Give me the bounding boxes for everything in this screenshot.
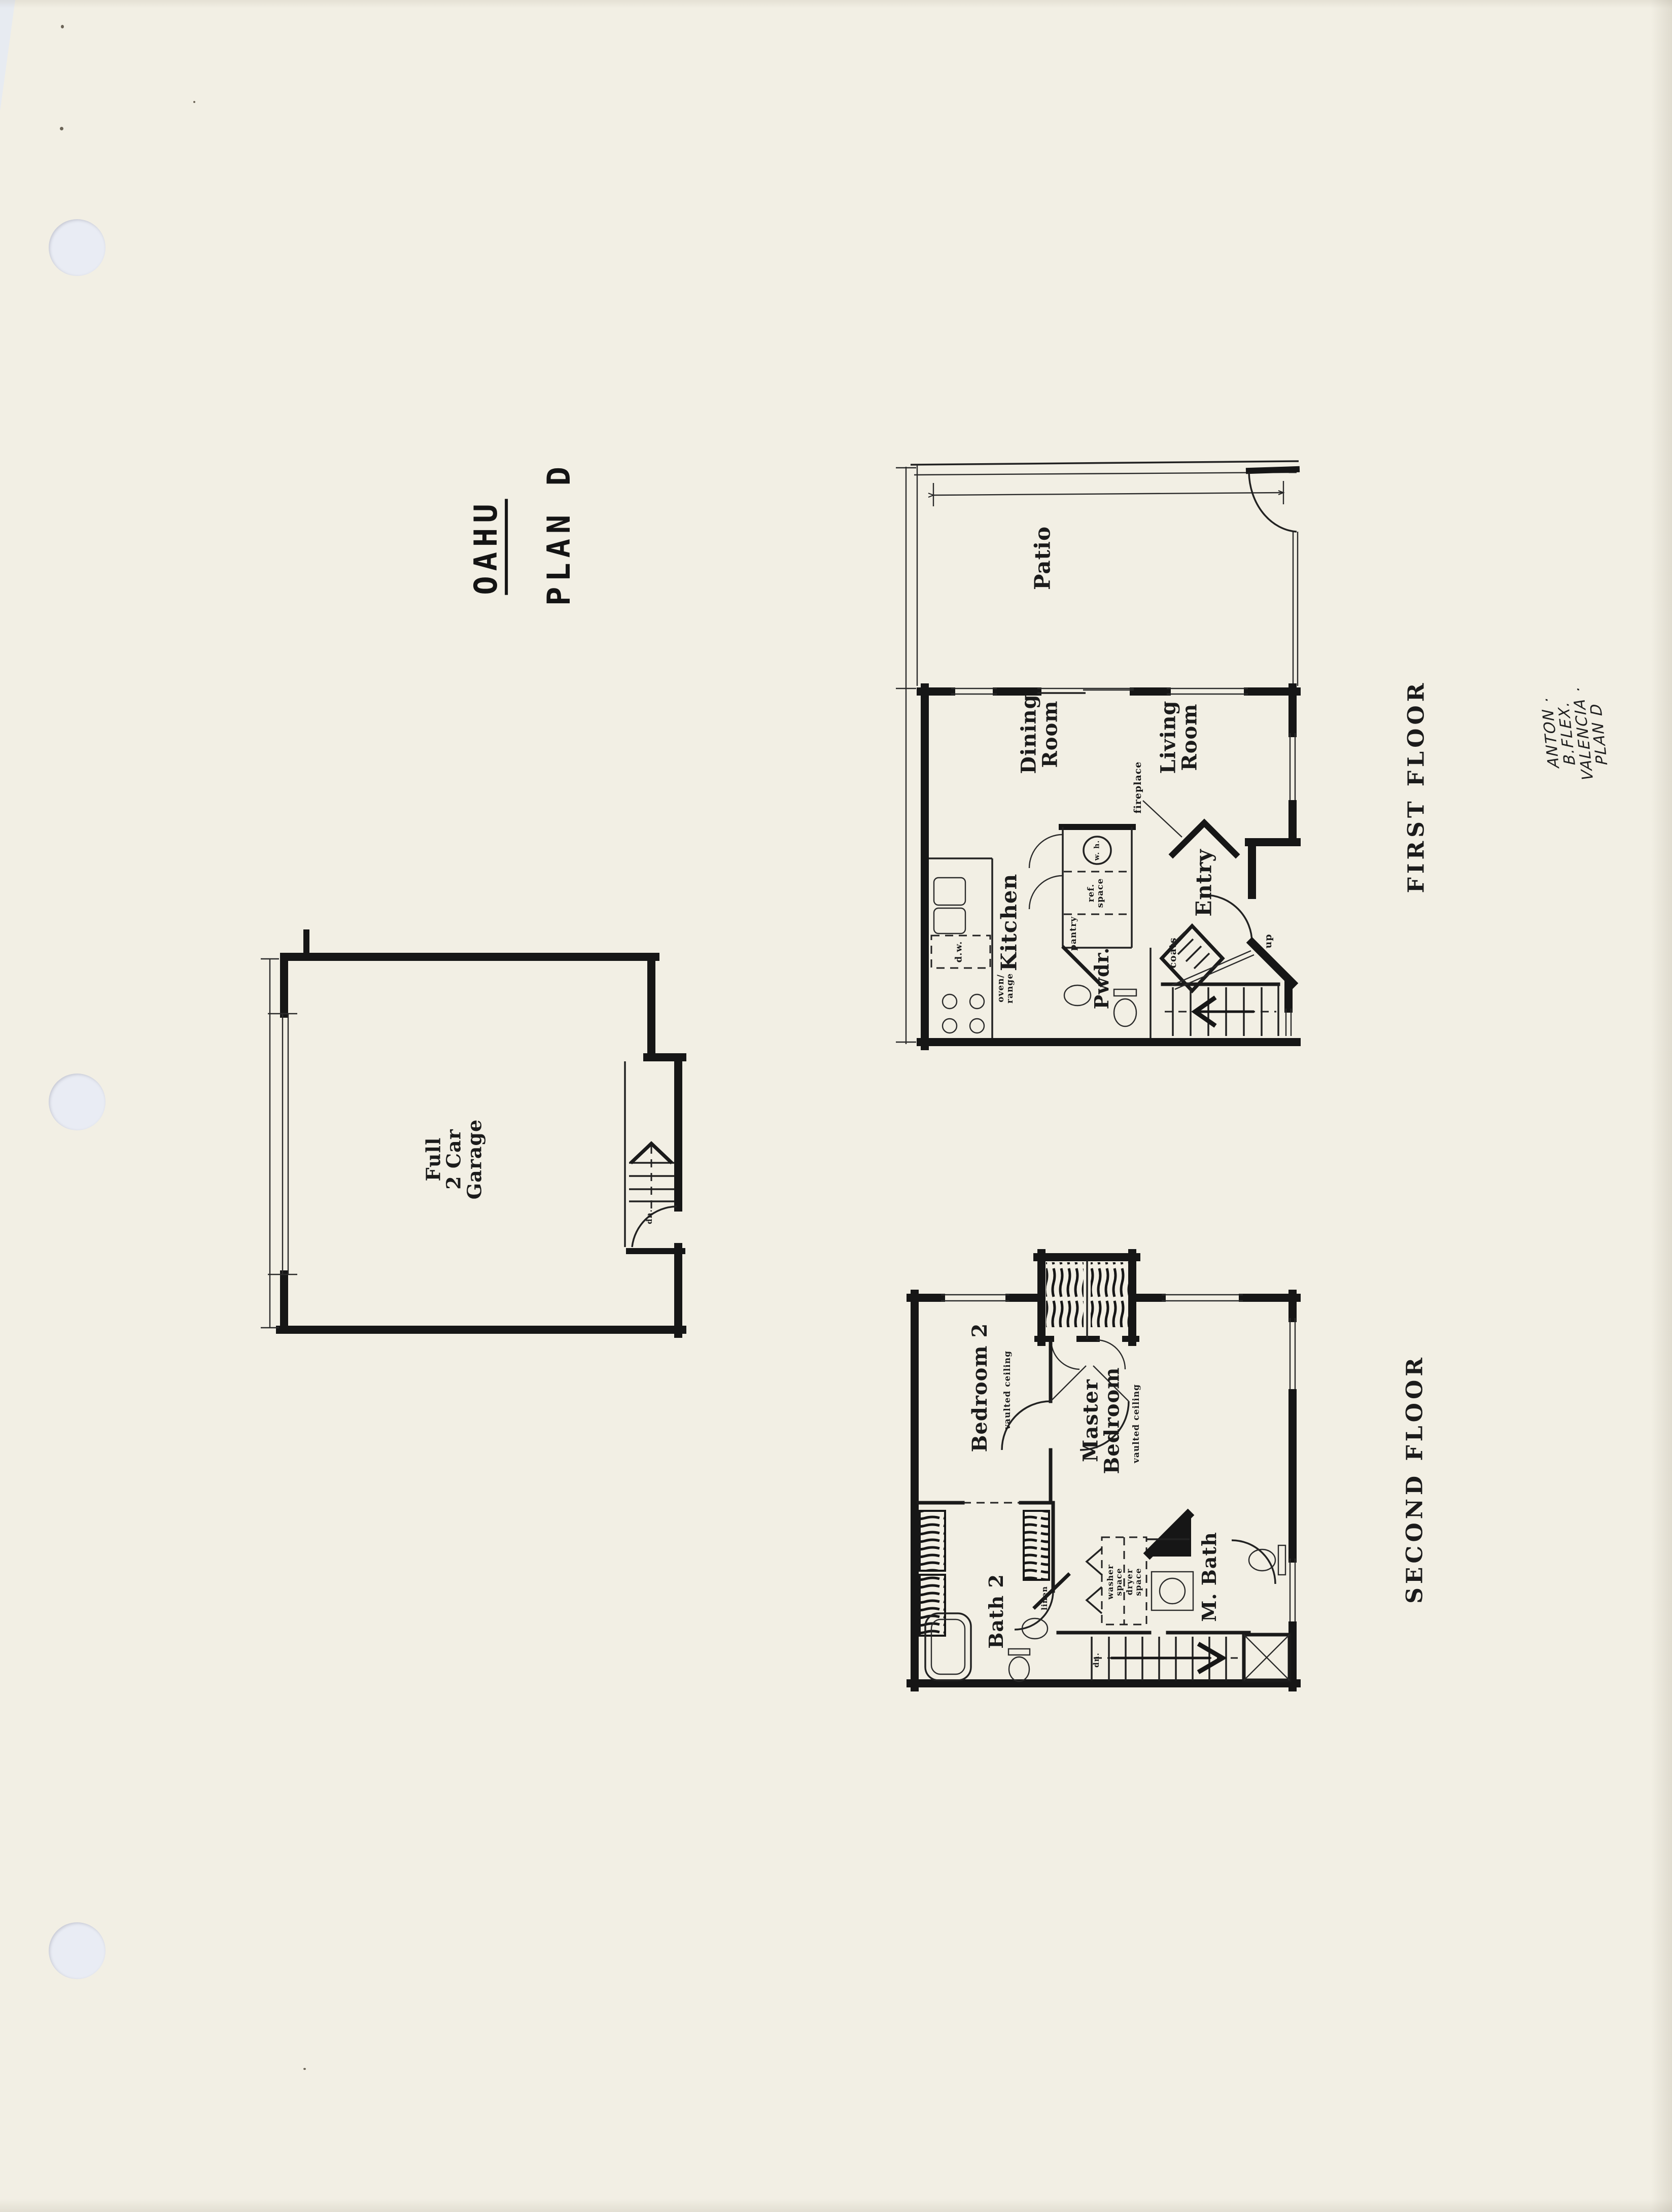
room-label-garage: Full 2 Car Garage bbox=[424, 1119, 485, 1199]
label-ref-space: ref. space bbox=[1087, 878, 1105, 908]
title-plan: PLAN D bbox=[542, 462, 576, 606]
room-label-powder: Pwdr. bbox=[1092, 947, 1112, 1010]
room-label-master-bedroom: Master Bedroom bbox=[1081, 1367, 1124, 1474]
first-floor-title: FIRST FLOOR bbox=[1405, 680, 1429, 893]
second-floor-title: SECOND FLOOR bbox=[1404, 1354, 1427, 1604]
scanned-floor-plan-page: OAHU PLAN D FIRST FLOOR SECOND FLOOR ANT… bbox=[0, 0, 1672, 2212]
label-stairs-down: dn. bbox=[1093, 1652, 1101, 1668]
room-label-dining: Dining Room bbox=[1019, 694, 1062, 774]
title-project: OAHU bbox=[469, 499, 503, 595]
room-label-living: Living Room bbox=[1158, 701, 1201, 774]
label-coats: coats bbox=[1168, 937, 1178, 968]
label-bedroom2-vaulted: vaulted ceiling bbox=[1003, 1351, 1012, 1430]
label-fireplace: fireplace bbox=[1133, 762, 1143, 814]
room-label-kitchen: Kitchen bbox=[998, 874, 1021, 971]
label-washer-space: washer space bbox=[1106, 1564, 1124, 1599]
label-oven-range: oven/ range bbox=[996, 973, 1015, 1004]
room-label-patio: Patio bbox=[1032, 526, 1055, 590]
label-master-vaulted: vaulted ceiling bbox=[1132, 1384, 1141, 1463]
label-water-heater: w. h. bbox=[1094, 840, 1101, 860]
floor-plan-drawing bbox=[0, 0, 1672, 2212]
label-linen: linen bbox=[1041, 1586, 1049, 1610]
label-pantry: pantry bbox=[1069, 916, 1078, 951]
handwritten-note: ANTON · B.FLEX. VALENCIA · PLAN D bbox=[1538, 684, 1613, 782]
room-label-master-bath: M. Bath bbox=[1199, 1532, 1220, 1621]
label-dryer-space: dryer space bbox=[1126, 1568, 1143, 1596]
room-label-bedroom2: Bedroom 2 bbox=[969, 1323, 991, 1453]
room-label-bath2: Bath 2 bbox=[986, 1574, 1006, 1649]
label-dishwasher: d.w. bbox=[954, 941, 963, 963]
room-label-entry: Entry bbox=[1193, 849, 1216, 916]
label-garage-down: dn. bbox=[646, 1209, 654, 1224]
label-stairs-up: up bbox=[1263, 934, 1273, 948]
